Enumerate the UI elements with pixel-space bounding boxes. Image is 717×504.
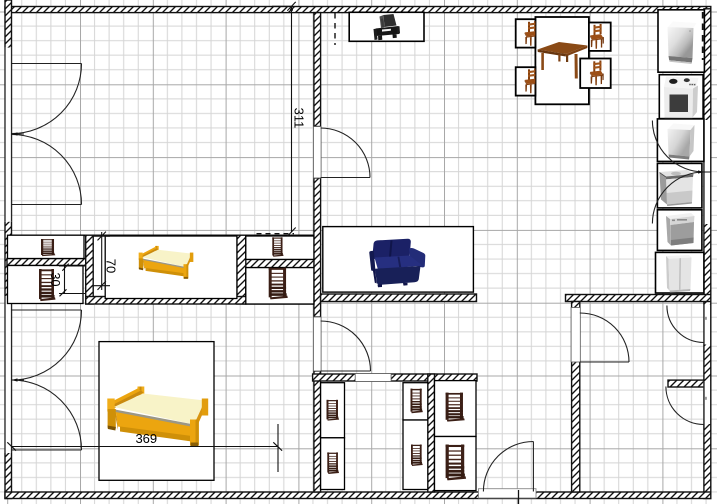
svg-text:369: 369 bbox=[135, 431, 157, 446]
svg-text:311: 311 bbox=[292, 108, 307, 129]
svg-text:70: 70 bbox=[104, 259, 119, 273]
svg-text:30: 30 bbox=[48, 273, 62, 287]
